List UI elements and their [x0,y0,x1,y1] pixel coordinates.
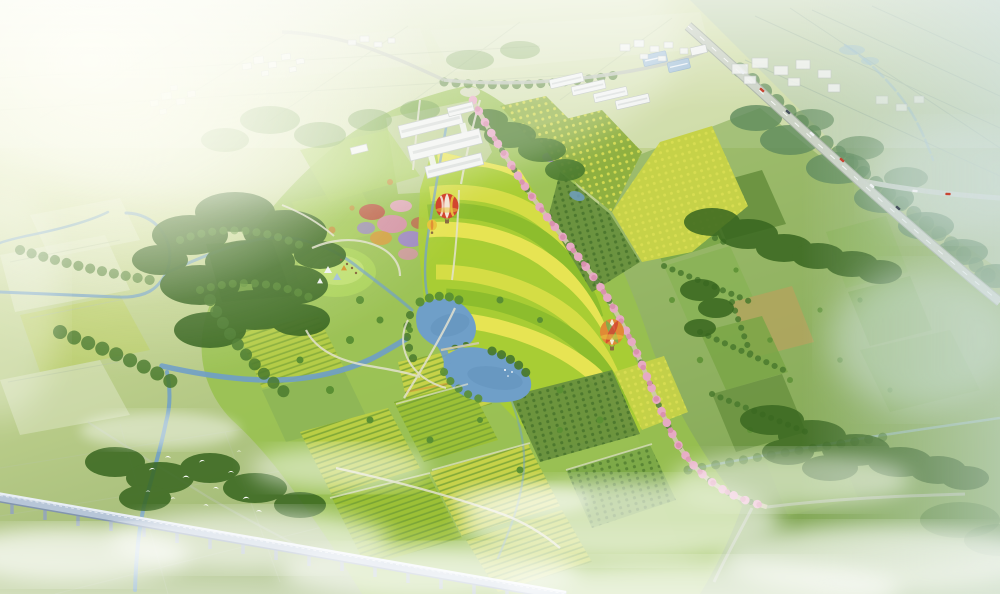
aerial-rendering [0,0,1000,594]
bottom-mist [0,520,1000,594]
park-masterplan-scene [0,0,1000,594]
